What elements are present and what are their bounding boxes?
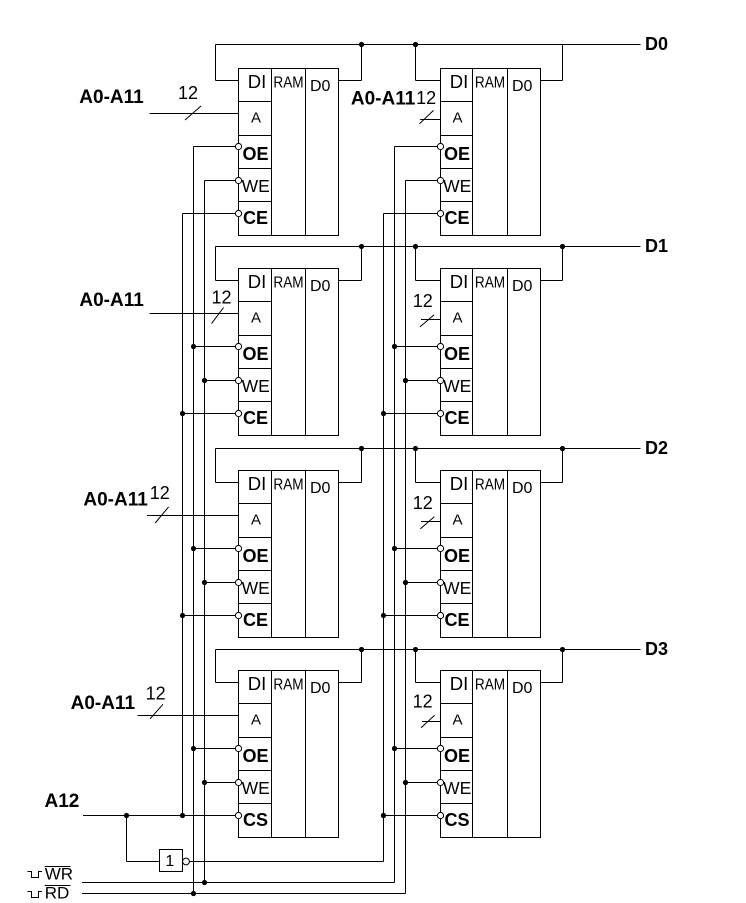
svg-text:RAM: RAM <box>273 75 303 92</box>
svg-text:WE: WE <box>242 778 270 798</box>
svg-text:DI: DI <box>450 271 469 292</box>
svg-text:D0: D0 <box>512 680 533 697</box>
svg-text:A0-A11: A0-A11 <box>79 290 144 311</box>
svg-text:CE: CE <box>444 408 469 428</box>
svg-text:DI: DI <box>450 673 469 694</box>
svg-text:WE: WE <box>242 176 270 196</box>
svg-text:D3: D3 <box>645 639 668 659</box>
svg-text:OE: OE <box>242 746 268 766</box>
svg-text:A: A <box>251 712 261 729</box>
svg-text:WE: WE <box>242 578 270 598</box>
svg-text:D0: D0 <box>512 480 533 497</box>
svg-text:A: A <box>452 110 462 127</box>
svg-text:12: 12 <box>413 692 433 712</box>
svg-text:A: A <box>251 512 261 529</box>
svg-text:12: 12 <box>416 88 436 108</box>
svg-text:A: A <box>251 110 261 127</box>
svg-text:A: A <box>452 712 462 729</box>
svg-text:OE: OE <box>444 746 470 766</box>
svg-text:A0-A11: A0-A11 <box>71 693 136 714</box>
svg-text:CE: CE <box>444 208 469 228</box>
svg-text:12: 12 <box>211 288 231 308</box>
svg-text:WE: WE <box>443 778 471 798</box>
svg-text:1: 1 <box>165 853 174 870</box>
svg-text:RD: RD <box>45 884 70 903</box>
svg-text:DI: DI <box>248 71 266 92</box>
svg-text:D0: D0 <box>512 78 533 95</box>
svg-text:D0: D0 <box>310 480 331 497</box>
svg-text:D1: D1 <box>645 236 668 256</box>
svg-text:A0-A11: A0-A11 <box>79 87 144 108</box>
svg-text:D0: D0 <box>310 78 331 95</box>
svg-text:A0-A11: A0-A11 <box>83 490 148 511</box>
svg-text:WR: WR <box>45 864 73 883</box>
svg-text:RAM: RAM <box>273 677 303 694</box>
svg-text:WE: WE <box>443 578 471 598</box>
svg-text:CE: CE <box>444 610 469 630</box>
svg-text:D0: D0 <box>310 278 331 295</box>
svg-text:A: A <box>251 310 261 327</box>
svg-text:DI: DI <box>450 473 469 494</box>
svg-text:RAM: RAM <box>475 677 505 694</box>
svg-text:RAM: RAM <box>475 477 505 494</box>
svg-text:CE: CE <box>243 208 268 228</box>
svg-text:D0: D0 <box>512 278 533 295</box>
svg-text:OE: OE <box>242 344 268 364</box>
svg-text:12: 12 <box>150 483 170 503</box>
svg-text:A: A <box>452 310 462 327</box>
svg-text:RAM: RAM <box>475 75 505 92</box>
svg-text:DI: DI <box>248 271 266 292</box>
svg-text:D2: D2 <box>645 438 668 458</box>
svg-text:WE: WE <box>443 376 471 396</box>
svg-text:RAM: RAM <box>273 275 303 292</box>
svg-text:D0: D0 <box>645 34 668 54</box>
svg-text:DI: DI <box>248 673 266 694</box>
svg-text:D0: D0 <box>310 680 331 697</box>
svg-text:RAM: RAM <box>273 477 303 494</box>
svg-text:CS: CS <box>243 810 268 830</box>
svg-text:CE: CE <box>243 610 268 630</box>
svg-text:RAM: RAM <box>475 275 505 292</box>
svg-text:WE: WE <box>443 176 471 196</box>
svg-text:CS: CS <box>444 810 469 830</box>
svg-text:12: 12 <box>413 291 433 311</box>
svg-text:A: A <box>452 512 462 529</box>
svg-text:OE: OE <box>444 546 470 566</box>
svg-text:OE: OE <box>242 144 268 164</box>
svg-text:A0-A11: A0-A11 <box>351 89 416 110</box>
svg-text:A12: A12 <box>45 791 80 812</box>
svg-text:DI: DI <box>248 473 266 494</box>
svg-text:12: 12 <box>178 83 198 103</box>
svg-text:OE: OE <box>444 144 470 164</box>
svg-text:OE: OE <box>444 344 470 364</box>
svg-text:CE: CE <box>243 408 268 428</box>
svg-text:12: 12 <box>413 493 433 513</box>
svg-text:12: 12 <box>146 684 166 704</box>
svg-text:DI: DI <box>450 71 469 92</box>
svg-text:WE: WE <box>242 376 270 396</box>
svg-text:OE: OE <box>242 546 268 566</box>
